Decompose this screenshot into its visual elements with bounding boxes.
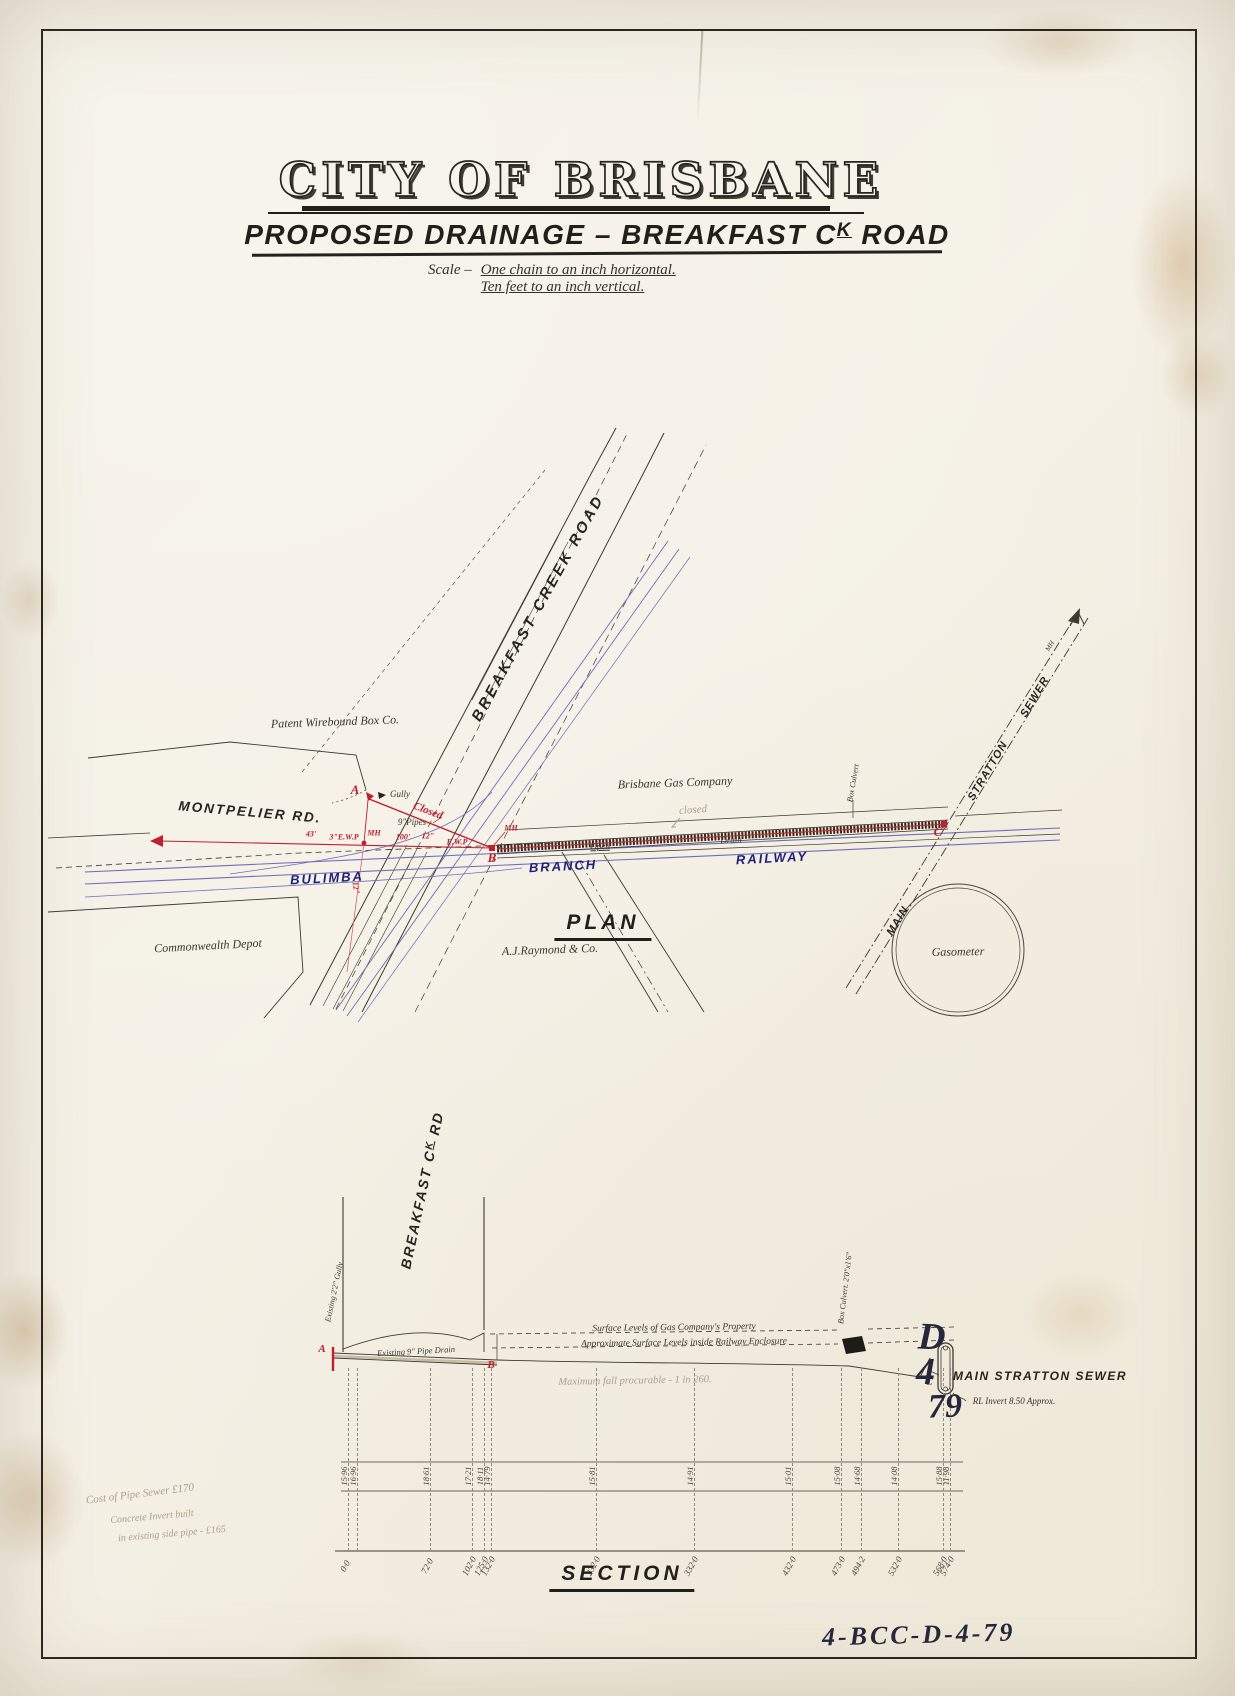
ordinate-level: 14·79 <box>482 1466 492 1485</box>
pipes-9in-label: 9"Pipes <box>398 817 426 827</box>
ordinate-line <box>348 1368 349 1551</box>
title-lettering: CITY OF BRISBANE CITY OF BRISBANE <box>268 153 886 214</box>
ordinate-level: 14·91 <box>685 1466 695 1485</box>
gully-label: Gully <box>390 789 410 799</box>
pipe-12in-vertical: 12" <box>350 881 361 895</box>
ordinate-line <box>694 1368 695 1551</box>
ordinate-level: 14·08 <box>889 1466 899 1485</box>
ordinate-line <box>430 1368 431 1551</box>
manhole-b: MH <box>504 824 517 833</box>
ordinate-level: 11·98 <box>941 1467 951 1486</box>
dim-12in: 12" <box>422 832 434 841</box>
plan-point-c: C <box>934 824 943 840</box>
plan-point-b: B <box>488 850 497 866</box>
ewp-3in: 3"E.W.P <box>329 833 358 842</box>
title-text: CITY OF BRISBANE <box>279 153 884 208</box>
ordinate-line <box>491 1368 492 1551</box>
ordinate-level: 15·01 <box>783 1466 793 1485</box>
section-heading: SECTION <box>549 1562 694 1592</box>
scale-line-2: Ten feet to an inch vertical. <box>481 279 645 295</box>
open-drain-label: Open <box>590 841 610 852</box>
ordinate-line <box>472 1368 473 1551</box>
subtitle-text-2: ROAD <box>852 219 950 250</box>
ordinate-level: 17·21 <box>463 1466 473 1485</box>
ordinate-level: 16·96 <box>348 1466 358 1485</box>
scale-note: Scale – One chain to an inch horizontal.… <box>428 262 676 296</box>
ordinate-level: 14·68 <box>852 1466 862 1485</box>
plan-point-a: A <box>351 782 360 798</box>
ordinate-level: 15·08 <box>832 1466 842 1485</box>
ewp-label: E.W.P <box>447 838 468 847</box>
ordinate-line <box>596 1368 597 1551</box>
gasometer-label: Gasometer <box>932 944 985 960</box>
sewer-dash-line <box>846 608 1088 994</box>
invert-level-label: RL Invert 8.50 Approx. <box>973 1396 1056 1406</box>
stamp-4: 4 <box>916 1350 935 1394</box>
scale-line-1: One chain to an inch horizontal. <box>481 262 676 278</box>
drain-label: Drain <box>720 835 742 846</box>
closed-pencil-note: closed <box>679 803 708 817</box>
ordinate-line <box>357 1368 358 1551</box>
ordinate-line <box>898 1368 899 1551</box>
plan-heading: PLAN <box>554 911 651 941</box>
ordinate-level: 18·61 <box>421 1466 431 1485</box>
section-point-a: A <box>318 1343 325 1355</box>
section-lines <box>333 1197 966 1551</box>
subtitle-text: PROPOSED DRAINAGE – BREAKFAST C <box>244 219 837 250</box>
reference-number: 4-BCC-D-4-79 <box>822 1617 1016 1652</box>
dim-100ft: 100' <box>396 833 410 842</box>
subtitle-superscript: K <box>837 220 852 241</box>
drawing-subtitle: PROPOSED DRAINAGE – BREAKFAST CK ROAD <box>244 219 950 251</box>
ordinate-line <box>484 1368 485 1551</box>
dim-43ft: 43' <box>306 830 316 839</box>
ordinate-level: 15·81 <box>587 1466 597 1485</box>
manhole-1: MH <box>367 829 380 838</box>
scale-prefix: Scale – <box>428 262 472 296</box>
ordinate-line <box>841 1368 842 1551</box>
ordinate-line <box>861 1368 862 1551</box>
ordinate-line <box>792 1368 793 1551</box>
stamp-79: 79 <box>927 1387 962 1426</box>
drawing-sheet: CITY OF BRISBANE CITY OF BRISBANE <box>0 0 1235 1696</box>
main-stratton-sewer-label: MAIN STRATTON SEWER <box>953 1369 1127 1383</box>
